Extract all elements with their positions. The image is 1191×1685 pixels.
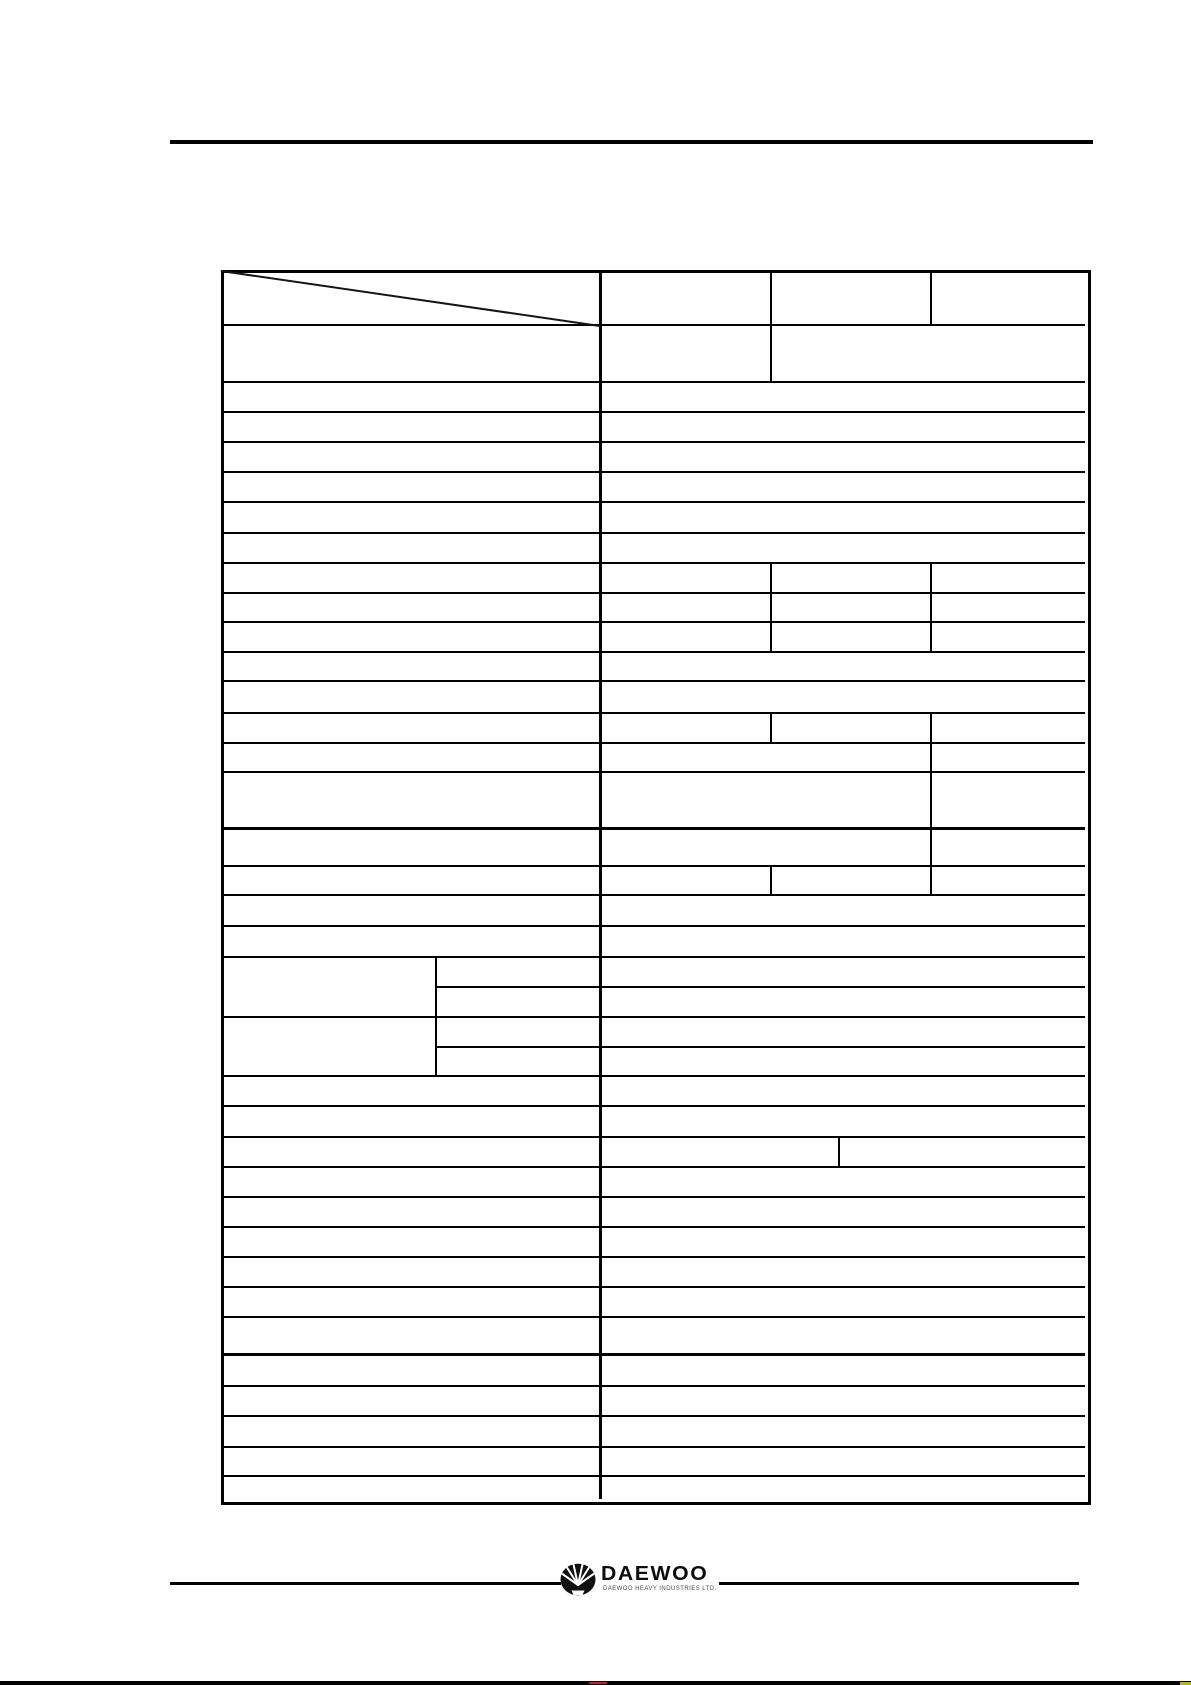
table-gridline: [221, 894, 1085, 896]
table-gridline: [221, 441, 1085, 443]
table-gridline: [221, 956, 1085, 958]
table-gridline: [221, 925, 1085, 927]
table-gridline: [221, 1286, 1085, 1288]
table-gridline: [221, 1016, 1085, 1018]
table-gridline: [221, 1136, 1085, 1138]
table-gridline: [221, 621, 1085, 623]
table-gridline: [770, 270, 772, 382]
document-page: DAEWOO DAEWOO HEAVY INDUSTRIES LTD.: [0, 0, 1191, 1685]
table-gridline: [221, 680, 1085, 682]
table-gridline: [221, 742, 1085, 744]
table-gridline: [221, 411, 1085, 413]
table-gridline: [221, 532, 1085, 534]
table-gridline: [770, 713, 772, 743]
table-gridline: [221, 1256, 1085, 1258]
table-gridline: [599, 270, 602, 1499]
table-gridline: [221, 1316, 1085, 1318]
table-gridline: [221, 381, 1085, 383]
table-gridline: [435, 957, 437, 1076]
table-gridline: [221, 501, 1085, 503]
table-gridline: [221, 1226, 1085, 1228]
table-gridline: [221, 1166, 1085, 1168]
daewoo-crest-icon: [558, 1562, 598, 1596]
table-gridline: [221, 651, 1085, 653]
table-gridline: [436, 1046, 1085, 1048]
table-gridline: [930, 563, 932, 652]
table-gridline: [770, 563, 772, 652]
brand-wordmark: DAEWOO: [601, 1564, 708, 1584]
table-gridline: [221, 1415, 1085, 1417]
table-gridline: [221, 865, 1085, 867]
table-gridline: [221, 712, 1085, 714]
table-gridline: [770, 866, 772, 895]
table-gridline: [930, 713, 932, 895]
table-gridline: [930, 270, 932, 325]
table-gridline: [221, 1353, 1085, 1356]
page-top-rule: [170, 140, 1093, 144]
table-gridline: [221, 1075, 1085, 1077]
table-gridline: [221, 1196, 1085, 1198]
table-gridline: [221, 771, 1085, 773]
table-gridline: [221, 1105, 1085, 1107]
table-gridline: [838, 1137, 840, 1167]
table-gridline: [436, 986, 1085, 988]
footer-rule-left: [170, 1582, 561, 1585]
table-gridline: [221, 592, 1085, 594]
bottom-red-mark: [589, 1682, 607, 1684]
brand-subtext: DAEWOO HEAVY INDUSTRIES LTD.: [603, 1586, 717, 1593]
table-gridline: [221, 324, 1085, 326]
table-gridline: [221, 1446, 1085, 1448]
table-gridline: [221, 827, 1085, 830]
table-gridline: [221, 1385, 1085, 1387]
footer-rule-right: [719, 1582, 1079, 1585]
table-gridline: [221, 562, 1085, 564]
spec-table: [221, 270, 1091, 1505]
table-gridline: [221, 471, 1085, 473]
table-gridline: [221, 1475, 1085, 1477]
